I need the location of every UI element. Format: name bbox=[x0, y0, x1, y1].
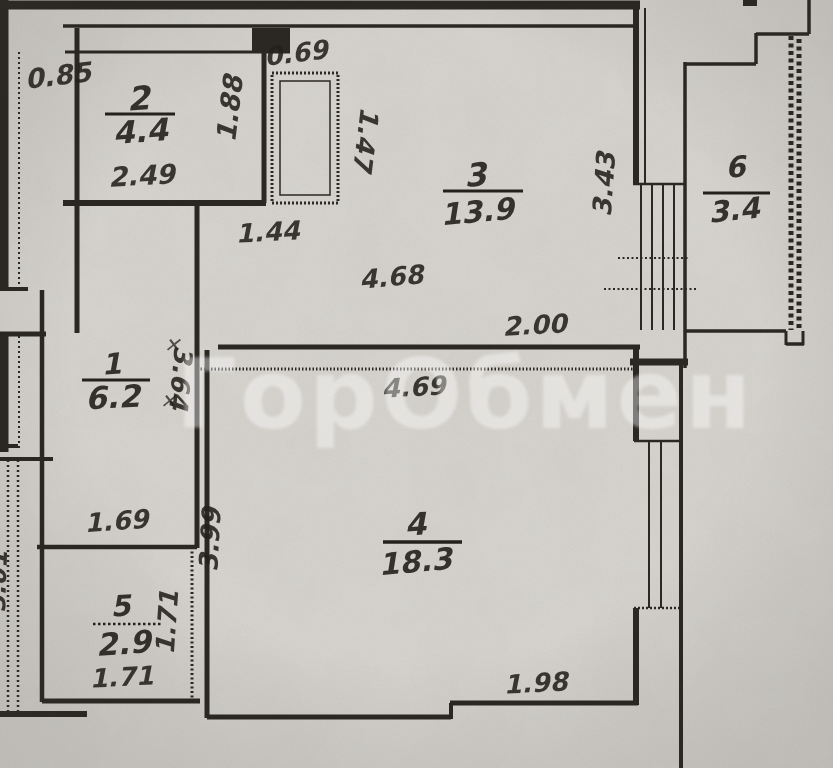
floor-plan-svg: 0.85 2 4.4 1.88 2.49 0.69 1.47 1.44 3 13… bbox=[0, 0, 833, 768]
floor-plan-scan: 0.85 2 4.4 1.88 2.49 0.69 1.47 1.44 3 13… bbox=[0, 0, 833, 768]
photo-vignette bbox=[0, 0, 833, 768]
